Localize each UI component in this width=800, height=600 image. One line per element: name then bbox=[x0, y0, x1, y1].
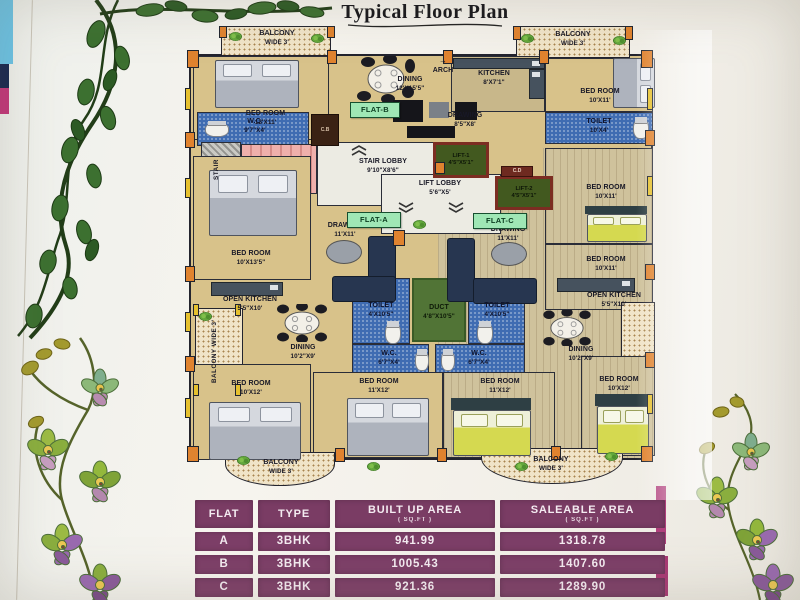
pillar bbox=[185, 266, 195, 282]
balcony-top-left-label: BALCONYWIDE 3' bbox=[237, 30, 317, 47]
pillar bbox=[513, 26, 521, 40]
table-row-c-built: 921.36 bbox=[335, 578, 495, 597]
pillar-accent bbox=[185, 312, 191, 332]
coffee-table-icon bbox=[326, 240, 362, 264]
flat-b-badge: FLAT-B bbox=[350, 102, 400, 118]
table-row-b-flat: B bbox=[195, 555, 253, 574]
toilet-icon bbox=[477, 322, 493, 344]
pillar bbox=[185, 356, 195, 372]
pillar-accent bbox=[185, 398, 191, 418]
plant-icon bbox=[413, 220, 426, 229]
lift-lobby-label: LIFT LOBBY5'6"X5' bbox=[395, 180, 485, 197]
plant-icon bbox=[605, 452, 618, 461]
down-arrow-icon bbox=[447, 202, 465, 213]
toilet-top-right-label: TOILET10'X4' bbox=[567, 118, 631, 135]
wc-a-label: W.C.6'7"X4' bbox=[363, 350, 415, 367]
open-kitchen-counter bbox=[211, 282, 283, 296]
col-header-saleable: SALEABLE AREA( SQ.FT ) bbox=[500, 500, 665, 528]
balcony-bottom-right-label: BALCONYWIDE 3' bbox=[511, 456, 591, 473]
wc-top-left-label: W.C.9'7"X4' bbox=[225, 118, 285, 135]
bed-headboard bbox=[451, 398, 531, 410]
plant-icon bbox=[367, 462, 380, 471]
kitchen-label: KITCHEN8'X7'1" bbox=[461, 70, 527, 87]
cupboard: C.B bbox=[311, 114, 339, 146]
cupboard-cd: C.D bbox=[501, 166, 533, 177]
toilet-c-label: TOILET4'X10'5" bbox=[473, 302, 521, 319]
bedroom-bottom-mid-1-label: BED ROOM11'X12' bbox=[343, 378, 415, 395]
sofa-icon bbox=[447, 238, 475, 302]
balcony-top-right-label: BALCONYWIDE 3' bbox=[533, 31, 613, 48]
bedroom-right-2-label: BED ROOM10'X11' bbox=[567, 256, 645, 273]
table-row-a-flat: A bbox=[195, 532, 253, 551]
toilet-icon bbox=[415, 350, 429, 371]
orchid-decoration-left bbox=[0, 330, 150, 600]
table-row-a-type: 3BHK bbox=[258, 532, 330, 551]
pillar bbox=[327, 26, 335, 38]
coffee-table-icon bbox=[491, 242, 527, 266]
pillar bbox=[641, 50, 653, 68]
stair-lobby-label: STAIR LOBBY9'10"X8'6" bbox=[335, 158, 431, 175]
table-row-b-type: 3BHK bbox=[258, 555, 330, 574]
pillar bbox=[327, 50, 337, 64]
pillar-accent bbox=[185, 178, 191, 198]
bedroom-bottom-left-label: BED ROOM10'X12' bbox=[207, 380, 295, 397]
toilet-icon bbox=[385, 322, 401, 344]
pillar bbox=[641, 446, 653, 462]
pillar bbox=[187, 446, 199, 462]
sofa-icon bbox=[473, 278, 537, 304]
pillar bbox=[539, 50, 549, 64]
bed-icon bbox=[453, 410, 531, 456]
area-table: FLAT TYPE BUILT UP AREA( SQ.FT ) SALEABL… bbox=[195, 500, 665, 597]
pillar-accent bbox=[185, 88, 191, 110]
bedroom-bottom-mid-2-label: BED ROOM11'X12' bbox=[463, 378, 537, 395]
dining-right-label: DINING10'2"X9' bbox=[547, 346, 615, 363]
bedroom-bottom-right-label: BED ROOM10'X12' bbox=[585, 376, 653, 393]
bed-icon bbox=[215, 60, 299, 108]
dining-b-label: DINING12'X15'5" bbox=[370, 76, 450, 93]
pillar bbox=[187, 50, 199, 68]
pillar bbox=[645, 130, 655, 146]
kitchen-counter-side bbox=[529, 69, 545, 99]
title-underline bbox=[340, 20, 510, 30]
lift-2: LIFT-24'5"X5'1" bbox=[495, 176, 553, 210]
table-row-a-sale: 1318.78 bbox=[500, 532, 665, 551]
pillar bbox=[435, 162, 445, 174]
bedroom-top-right-label: BED ROOM10'X11' bbox=[563, 88, 637, 105]
table-row-b-sale: 1407.60 bbox=[500, 555, 665, 574]
arch-arrow: → bbox=[425, 56, 461, 66]
sofa-icon bbox=[332, 276, 396, 302]
up-arrow-icon bbox=[350, 145, 368, 156]
table-row-c-type: 3BHK bbox=[258, 578, 330, 597]
bedroom-mid-left-label: BED ROOM10'X13'5" bbox=[203, 250, 299, 267]
kitchen-counter bbox=[453, 58, 545, 69]
open-kitchen-counter bbox=[557, 278, 635, 292]
dining-table-icon bbox=[535, 310, 599, 346]
pillar-accent bbox=[193, 384, 199, 396]
wc-c-label: W.C.6'7"X4' bbox=[453, 350, 505, 367]
col-header-type: TYPE bbox=[258, 500, 330, 528]
drawing-b-label: DRAWING8'5"X8' bbox=[425, 112, 505, 129]
bed-headboard bbox=[585, 206, 647, 214]
arch-label: ARCH bbox=[425, 67, 461, 76]
pillar-accent bbox=[647, 394, 653, 414]
pillar bbox=[393, 230, 405, 246]
dining-left-label: DINING10'2"X9' bbox=[267, 344, 339, 361]
table-row-c-flat: C bbox=[195, 578, 253, 597]
orchid-decoration-right bbox=[665, 390, 800, 600]
bed-icon bbox=[587, 214, 647, 242]
table-row-a-built: 941.99 bbox=[335, 532, 495, 551]
pillar bbox=[219, 26, 227, 38]
toilet-a-label: TOILET4'X10'5" bbox=[357, 302, 405, 319]
flat-a-badge: FLAT-A bbox=[347, 212, 401, 228]
bedroom-right-1-label: BED ROOM10'X11' bbox=[567, 184, 645, 201]
pillar bbox=[645, 352, 655, 368]
col-header-builtup: BUILT UP AREA( SQ.FT ) bbox=[335, 500, 495, 528]
duct-label: DUCT4'8"X10'5" bbox=[415, 304, 463, 321]
flat-c-badge: FLAT-C bbox=[473, 213, 527, 229]
pillar bbox=[645, 264, 655, 280]
brochure-photo: { "title": "Typical Floor Plan", "badges… bbox=[0, 0, 800, 600]
balcony-bottom-left-label: BALCONYWIDE 3' bbox=[241, 459, 321, 476]
bed-icon bbox=[209, 170, 297, 236]
floor-plan: BALCONYWIDE 3' BALCONYWIDE 3' BED ROOM12… bbox=[185, 26, 665, 498]
table-row-c-sale: 1289.90 bbox=[500, 578, 665, 597]
table-row-b-built: 1005.43 bbox=[335, 555, 495, 574]
pillar bbox=[335, 448, 345, 462]
pillar-accent bbox=[647, 176, 653, 196]
open-kitchen-right-label: OPEN KITCHEN5'5"X10' bbox=[583, 292, 645, 309]
pillar bbox=[625, 26, 633, 40]
bed-headboard bbox=[595, 394, 649, 406]
col-header-flat: FLAT bbox=[195, 500, 253, 528]
pillar bbox=[185, 132, 195, 148]
pillar-accent bbox=[193, 304, 199, 316]
bed-icon bbox=[209, 402, 301, 460]
balcony-left-label: BALCONY WIDE 3' bbox=[211, 318, 219, 384]
stair-label: STAIR bbox=[213, 150, 221, 190]
bed-icon bbox=[347, 398, 429, 456]
pillar bbox=[437, 448, 447, 462]
pillar-accent bbox=[647, 88, 653, 110]
open-kitchen-left-label: OPEN KITCHEN5'5"X10' bbox=[219, 296, 281, 313]
